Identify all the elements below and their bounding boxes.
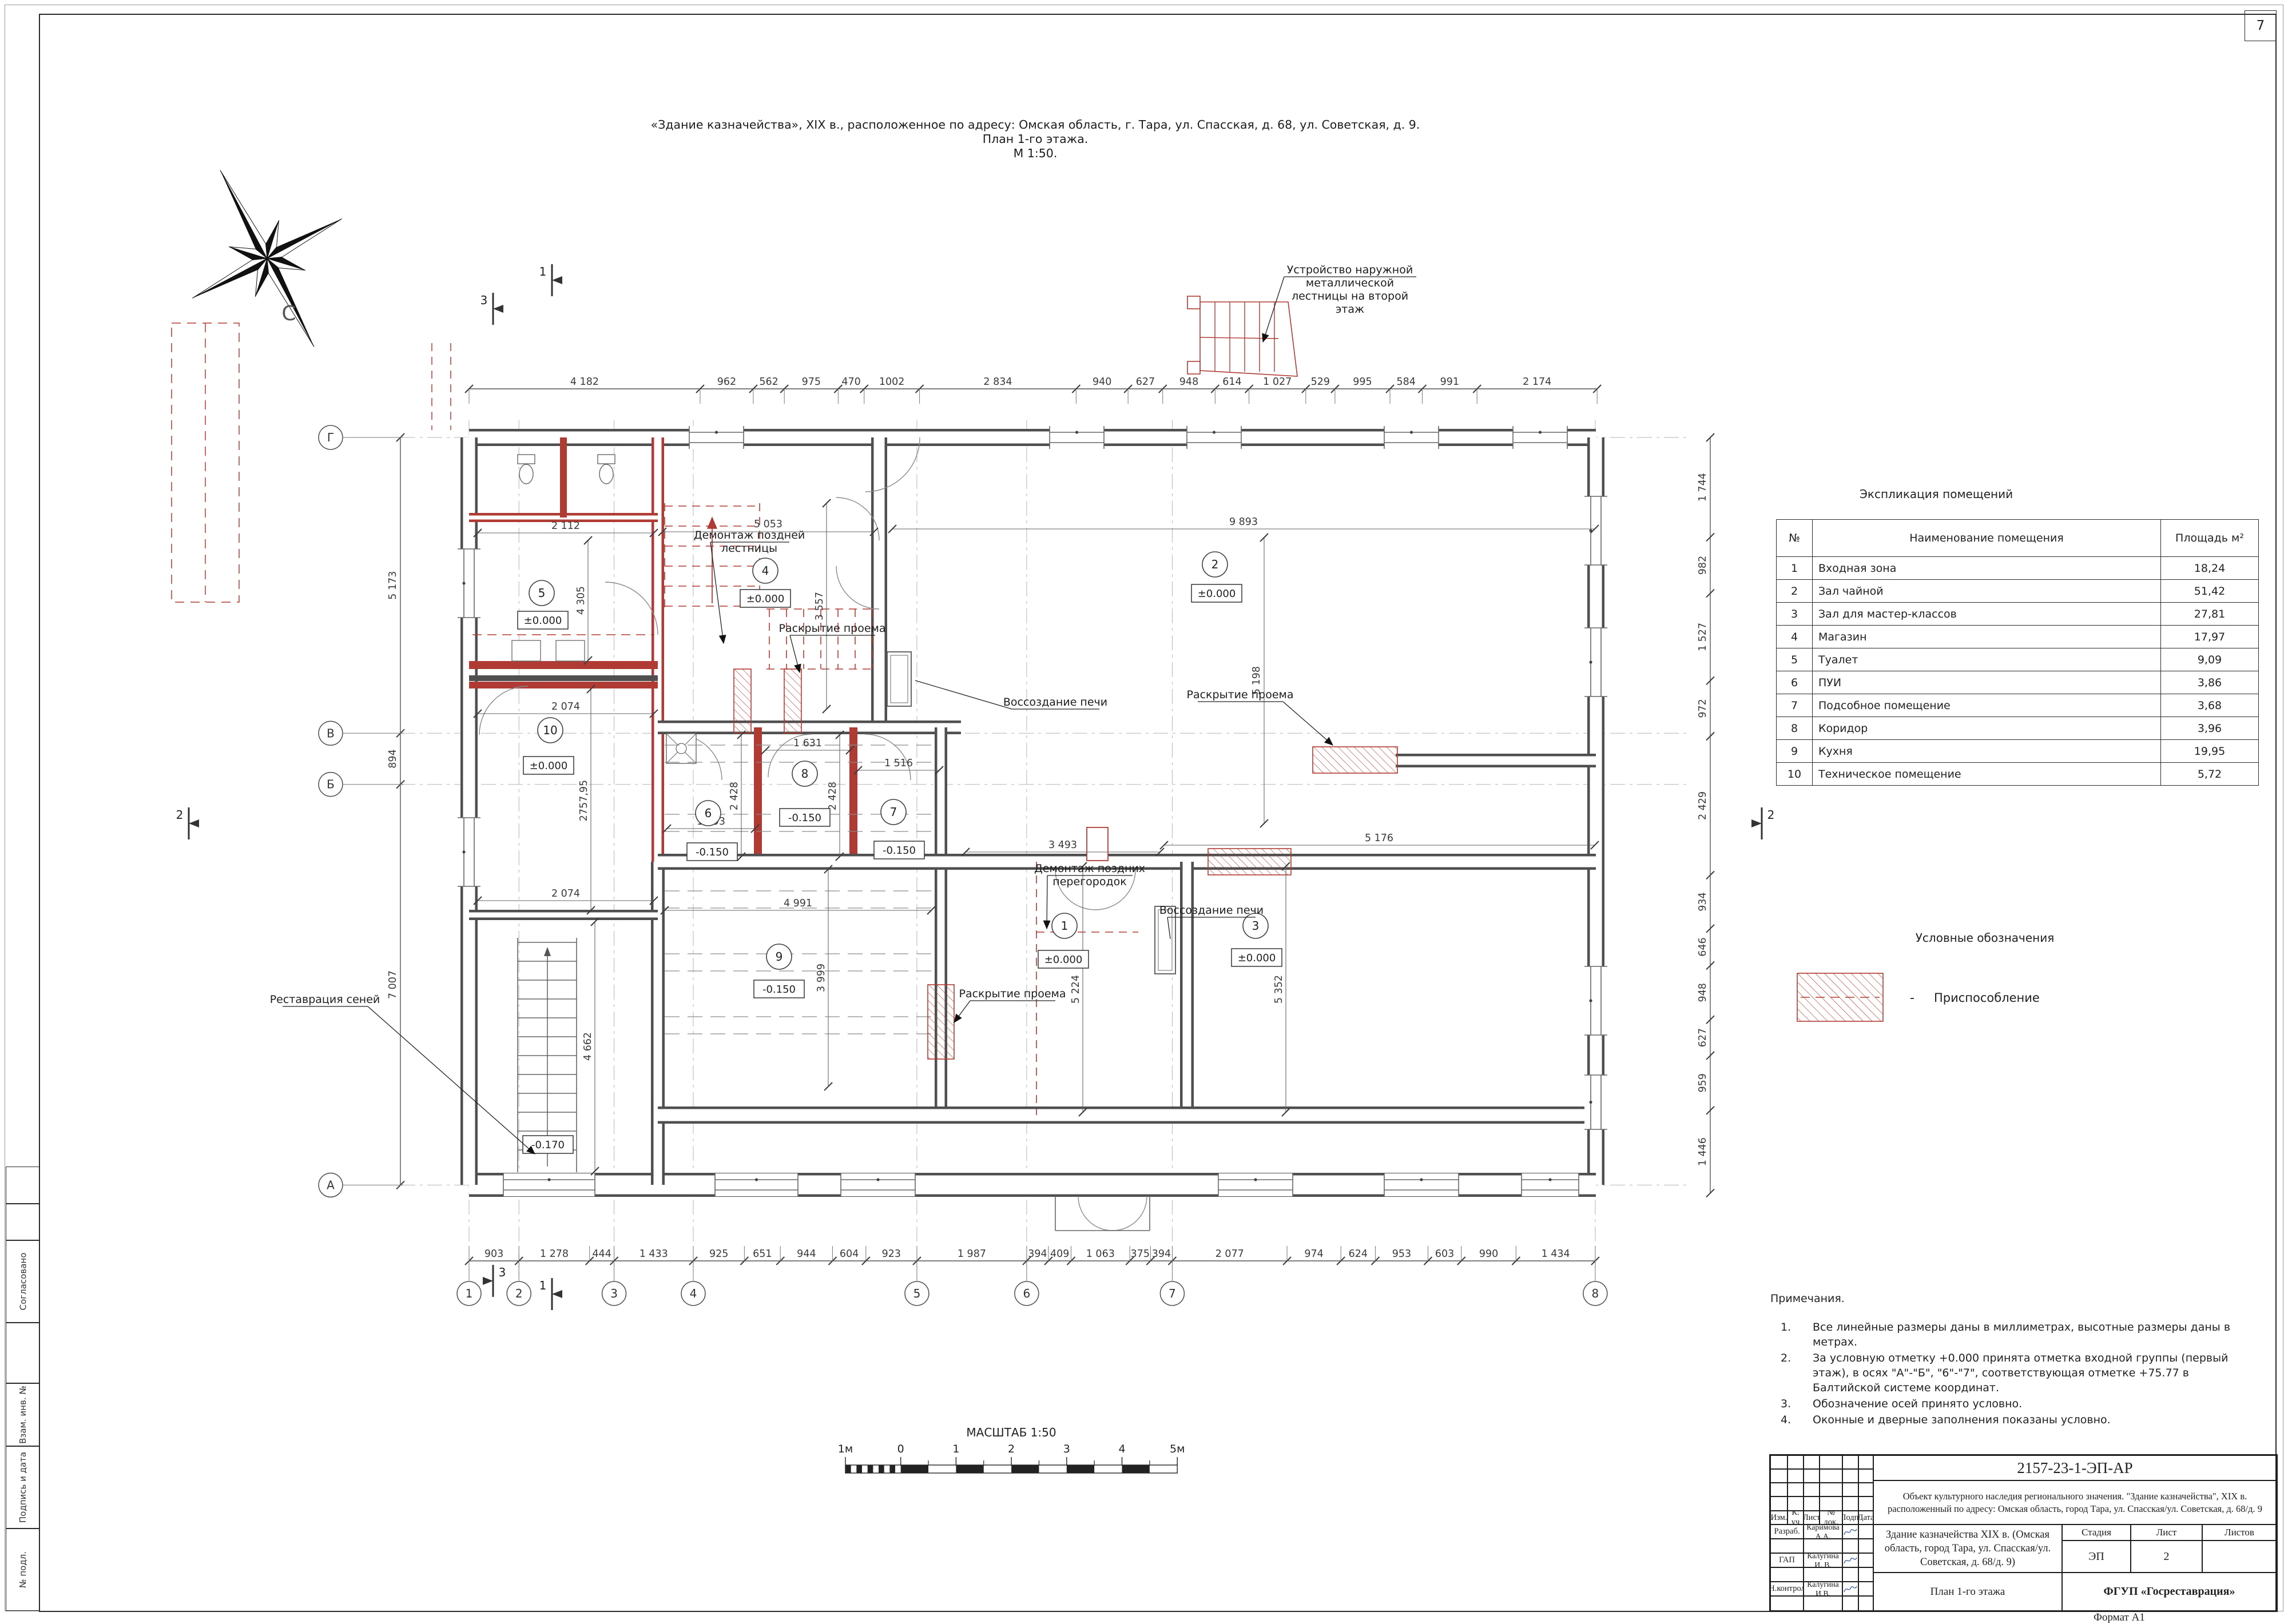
stamp-signature-cell [1842, 1596, 1858, 1611]
explication-row: 10Техническое помещение5,72 [1777, 763, 2259, 786]
door-arc [1113, 1196, 1147, 1231]
stamp-object-description: Объект культурного наследия региональног… [1882, 1490, 2268, 1515]
stamp-date-cell [1858, 1525, 1873, 1539]
compass-point [190, 253, 267, 298]
window-gap [841, 1173, 915, 1196]
room-explication: Экспликация помещений № Наименование пом… [1776, 487, 2228, 786]
dim-label: 2 174 [1523, 376, 1551, 388]
room-number-cell: 2 [1777, 580, 1813, 603]
dim-label: 948 [1697, 983, 1709, 1002]
window-dot [715, 431, 718, 433]
scale-bar-label: 4 [1118, 1443, 1125, 1455]
window-gap [1584, 628, 1607, 696]
dim-label: 2 077 [1215, 1248, 1244, 1260]
stamp-project-title: Здание казначейства XIX в. (Омская облас… [1873, 1525, 2062, 1573]
section-arrow [493, 305, 503, 313]
stamp-name: Калугина И. В. [1804, 1553, 1842, 1567]
stamp-name: Каримова А.А. [1804, 1525, 1842, 1539]
compass-point [267, 256, 319, 347]
room-number-cell: 5 [1777, 648, 1813, 671]
dim-label: 1 433 [639, 1248, 668, 1260]
dim-label: 627 [1697, 1028, 1709, 1047]
stamp-sheet-value: 2 [2131, 1541, 2202, 1573]
stamp-empty-cell [1787, 1469, 1804, 1483]
annotation-external-stair: этаж [1336, 303, 1364, 316]
stamp-empty-cell [1804, 1483, 1820, 1496]
dim-label: 624 [1349, 1248, 1368, 1260]
room-number: 7 [890, 805, 897, 819]
stamp-empty-cell [1770, 1455, 1787, 1469]
axis-bubble-label: 4 [690, 1287, 697, 1300]
window-dot [1420, 1178, 1423, 1181]
room-name-cell: ПУИ [1813, 671, 2161, 694]
stamp-empty-cell [1858, 1469, 1873, 1483]
section-label: 1 [539, 1279, 547, 1292]
scale-bar-block [889, 1465, 895, 1473]
stamp-header-5: Дата [1858, 1513, 1873, 1523]
room-name-cell: Магазин [1813, 626, 2161, 648]
stamp-date-cell [1858, 1596, 1873, 1611]
dim-label: 894 [387, 749, 399, 768]
stamp-empty-cell [1804, 1469, 1820, 1483]
window-dot [1254, 1178, 1257, 1181]
scale-bar-block [845, 1465, 851, 1473]
scale-bar-label: 2 [1008, 1443, 1015, 1455]
axis-bubble-label: Г [327, 431, 334, 444]
window-gap [458, 549, 480, 618]
room-number-cell: 7 [1777, 694, 1813, 717]
dim-label: 934 [1697, 892, 1709, 911]
axis-bubble-label: 6 [1023, 1287, 1031, 1300]
annotation-stove-2: Воссоздание печи [1159, 904, 1264, 917]
stamp-doc-number: 2157-23-1-ЭП-АР [2017, 1459, 2132, 1477]
room-name-cell: Кухня [1813, 740, 2161, 763]
window-dot [462, 582, 465, 584]
scale-bar-label: 3 [1063, 1443, 1070, 1455]
stamp-empty-cell [1842, 1496, 1858, 1511]
stamp-empty-cell [1820, 1496, 1842, 1511]
stamp-empty-cell [1820, 1455, 1842, 1469]
annotation-leader [1263, 277, 1284, 342]
dim-label: 1 063 [1086, 1248, 1115, 1260]
compass-north-label: С [281, 302, 296, 325]
explication-row: 2Зал чайной51,42 [1777, 580, 2259, 603]
dim-label: 975 [802, 376, 821, 388]
note-item: 1. Все линейные размеры даны в миллиметр… [1770, 1320, 2234, 1350]
stamp-date-cell [1858, 1567, 1873, 1582]
window-gap [1513, 426, 1567, 449]
stamp-organization: ФГУП «Госреставрация» [2104, 1585, 2235, 1598]
dim-label: 444 [592, 1248, 611, 1260]
annotation-external-stair: Устройство наружной [1287, 264, 1413, 276]
stamp-empty-cell [1842, 1469, 1858, 1483]
notes-title: Примечания. [1770, 1291, 2234, 1306]
window-gap [1187, 426, 1241, 449]
window-dot [1213, 431, 1215, 433]
axis-bubble-label: Б [327, 778, 335, 791]
adaptation-hatch [784, 669, 801, 733]
elevation-label: ±0.000 [746, 593, 785, 605]
title-block: Изм.К. учЛист№ док.Подп.ДатаРазраб.Карим… [1769, 1454, 2278, 1612]
dim-label: 2757,95 [578, 780, 590, 821]
annotation-leader [1283, 702, 1333, 745]
window-dot [1410, 431, 1413, 433]
axis-bubble-label: А [327, 1178, 335, 1192]
signature [1843, 1555, 1858, 1566]
dim-label: 614 [1222, 376, 1241, 388]
window-dot [876, 1178, 879, 1181]
room-name-cell: Зал для мастер-классов [1813, 603, 2161, 626]
room-area-cell: 17,97 [2161, 626, 2259, 648]
scale-bar-block [1011, 1465, 1039, 1473]
dim-label: 4 991 [784, 898, 812, 909]
stamp-role [1770, 1596, 1804, 1611]
explication-row: 6ПУИ3,86 [1777, 671, 2259, 694]
stamp-empty-cell [1787, 1496, 1804, 1511]
sidebar-cell-n-podl: № подл. [6, 1528, 40, 1611]
stamp-role: ГАП [1770, 1553, 1804, 1567]
axis-bubble-label: 3 [610, 1287, 618, 1300]
stamp-sheet-title: План 1-го этажа [1873, 1573, 2062, 1611]
room-area-cell: 51,42 [2161, 580, 2259, 603]
elevation-label: ±0.000 [530, 760, 568, 772]
axis-bubble-label: 7 [1169, 1287, 1176, 1300]
window-gap [1584, 496, 1607, 565]
stamp-empty-cell [1770, 1496, 1787, 1511]
basin-icon [556, 640, 585, 661]
stamp-signature-cell [1842, 1582, 1858, 1596]
dim-label: 1002 [879, 376, 905, 388]
stamp-empty-cell [1858, 1455, 1873, 1469]
window-gap [1584, 1075, 1607, 1129]
adaptation-hatch [734, 669, 751, 733]
stamp-header-3: № док. [1820, 1511, 1842, 1525]
sidebar-cell-empty [6, 1322, 40, 1384]
explication-row: 4Магазин17,97 [1777, 626, 2259, 648]
stamp-date-cell [1858, 1582, 1873, 1596]
stamp-role: Разраб. [1770, 1525, 1804, 1539]
axis-bubble-label: В [327, 726, 335, 740]
stamp-name [1804, 1596, 1842, 1611]
section-label: 2 [176, 808, 184, 822]
toilet-icon [519, 464, 533, 484]
annotation-seni: Реставрация сеней [270, 993, 380, 1006]
dim-label: 604 [840, 1248, 859, 1260]
axis-bubble-label: 8 [1592, 1287, 1599, 1300]
dim-label: 1 744 [1697, 473, 1709, 501]
annotation-leader [790, 635, 800, 672]
annotation-leader [954, 1001, 970, 1022]
stamp-role [1770, 1539, 1804, 1553]
toilet-icon [518, 455, 535, 464]
stamp-header-1: К. уч [1787, 1511, 1804, 1525]
stamp-sheet-label: Лист [2156, 1527, 2177, 1538]
door-arc [479, 686, 528, 735]
window-gap [1584, 966, 1607, 1035]
stamp-empty-cell [1804, 1496, 1820, 1511]
dim-label: 529 [1311, 376, 1330, 388]
section-arrow [189, 819, 199, 827]
dim-label: 470 [841, 376, 860, 388]
note-number: 2. [1770, 1351, 1813, 1395]
adaptation-hatch [1313, 747, 1397, 773]
scale-bar-block [879, 1465, 884, 1473]
dim-label: 4 662 [582, 1032, 594, 1061]
stamp-name [1804, 1539, 1842, 1553]
stair-arrow [544, 947, 551, 956]
stamp-empty-cell [1858, 1483, 1873, 1496]
explication-col-area: Площадь м² [2161, 520, 2259, 557]
note-text: Все линейные размеры даны в миллиметрах,… [1813, 1320, 2234, 1350]
window-gap [1384, 426, 1439, 449]
room-area-cell: 3,86 [2161, 671, 2259, 694]
stamp-stage-value: ЭП [2088, 1550, 2104, 1563]
stamp-name: Калугина И. В. [1804, 1553, 1842, 1567]
elevation-label: -0.150 [762, 984, 796, 996]
dim-label: 990 [1479, 1248, 1498, 1260]
stamp-empty-cell [1787, 1483, 1804, 1496]
compass-point [220, 168, 272, 258]
dim-label: 584 [1397, 376, 1416, 388]
elevation-label: -0.150 [788, 812, 821, 824]
section-label: 3 [480, 293, 488, 307]
stamp-name: Калугина И.В. [1804, 1582, 1842, 1596]
annotation-leader [368, 1006, 535, 1154]
window-gap [1050, 426, 1104, 449]
room-name-cell: Коридор [1813, 717, 2161, 740]
scale-bar-label: 5м [1170, 1443, 1185, 1455]
scale-bar-block [856, 1465, 862, 1473]
dim-label: 1 446 [1697, 1137, 1709, 1166]
scale-bar-block [868, 1465, 873, 1473]
stamp-header-1: К. уч [1788, 1511, 1803, 1525]
legend-dash: - [1910, 991, 1914, 1005]
dim-label: 2 834 [983, 376, 1012, 388]
room-number: 6 [705, 806, 712, 820]
note-item: 3. Обозначение осей принято условно. [1770, 1396, 2234, 1411]
section-arrow [483, 1277, 493, 1285]
section-label: 1 [539, 265, 547, 278]
scale-bar-block [956, 1465, 983, 1473]
stamp-sheet-title: План 1-го этажа [1930, 1586, 2005, 1598]
explication-row: 5Туалет9,09 [1777, 648, 2259, 671]
explication-row: 1Входная зона18,24 [1777, 557, 2259, 580]
explication-col-num: № [1777, 520, 1813, 557]
dim-label: 4 305 [575, 586, 587, 615]
explication-row: 3Зал для мастер-классов27,81 [1777, 603, 2259, 626]
stamp-date-cell [1858, 1539, 1873, 1553]
red-pier [1087, 827, 1108, 861]
stamp-header-3: № док. [1820, 1511, 1842, 1525]
room-number-cell: 6 [1777, 671, 1813, 694]
room-number: 5 [538, 586, 546, 600]
room-name-cell: Техническое помещение [1813, 763, 2161, 786]
room-number-cell: 10 [1777, 763, 1813, 786]
stamp-sheet-label: Лист [2131, 1525, 2202, 1541]
room-number-cell: 3 [1777, 603, 1813, 626]
scale-bar-block [901, 1465, 928, 1473]
window-dot [462, 850, 465, 853]
window-gap [1218, 1173, 1293, 1196]
signature [1843, 1583, 1858, 1595]
dim-label: 959 [1697, 1073, 1709, 1092]
stamp-role: Н.контрол [1770, 1582, 1804, 1596]
sidebar-cell-empty [6, 1203, 40, 1241]
scale-bar-block [1122, 1465, 1150, 1473]
window-dot [1589, 660, 1592, 663]
dim-label: 394 [1028, 1248, 1047, 1260]
window-gap [458, 818, 480, 886]
section-arrow [552, 276, 562, 284]
stamp-sheets-label: Листов [2202, 1525, 2277, 1541]
stamp-empty-cell [1842, 1483, 1858, 1496]
stamp-role [1770, 1567, 1804, 1582]
stamp-signature-cell [1842, 1525, 1858, 1539]
annotation-external-stair: металлической [1306, 277, 1394, 289]
dim-label: 948 [1179, 376, 1198, 388]
explication-col-name: Наименование помещения [1813, 520, 2161, 557]
window-gap [689, 426, 744, 449]
room-name-cell: Подсобное помещение [1813, 694, 2161, 717]
axis-bubble-label: 1 [466, 1287, 473, 1300]
dim-label: 2 428 [729, 782, 740, 810]
stamp-empty-cell [1820, 1469, 1842, 1483]
dim-label: 923 [882, 1248, 901, 1260]
note-item: 2. За условную отметку +0.000 принята от… [1770, 1351, 2234, 1395]
explication-row: 9Кухня19,95 [1777, 740, 2259, 763]
toilet-icon [599, 464, 613, 484]
stamp-empty-cell [1770, 1469, 1787, 1483]
stamp-header-2: Лист [1804, 1511, 1820, 1525]
dim-label: 972 [1697, 699, 1709, 718]
annotation-leader [1047, 875, 1047, 929]
toilet-icon [598, 455, 615, 464]
room-number: 10 [543, 723, 557, 737]
dim-label: 1 434 [1542, 1248, 1570, 1260]
stamp-empty-cell [1842, 1455, 1858, 1469]
external-stair-line [1200, 337, 1278, 339]
compass-rose [145, 130, 389, 387]
explication-row: 8Коридор3,96 [1777, 717, 2259, 740]
room-area-cell: 3,68 [2161, 694, 2259, 717]
room-area-cell: 3,96 [2161, 717, 2259, 740]
dim-label: 7 007 [387, 970, 399, 999]
sidebar-label: Подпись и дата [18, 1452, 28, 1523]
sidebar-label: № подл. [18, 1551, 28, 1587]
dim-label: 2 074 [551, 888, 580, 899]
dim-label: 646 [1697, 937, 1709, 956]
room-number: 9 [776, 950, 783, 964]
dim-label: 5 053 [754, 519, 782, 530]
room-area-cell: 5,72 [2161, 763, 2259, 786]
annotation-open-3: Раскрытие проема [959, 988, 1066, 1000]
window-dot [1589, 1101, 1592, 1104]
stamp-header-2: Лист [1804, 1513, 1820, 1523]
stamp-organization: ФГУП «Госреставрация» [2062, 1573, 2277, 1611]
dim-label: 627 [1136, 376, 1155, 388]
scale-bar-label: 1 [952, 1443, 959, 1455]
adaptation-hatch [1208, 849, 1291, 875]
signature [1843, 1526, 1858, 1538]
room-number-cell: 8 [1777, 717, 1813, 740]
stamp-header-4: Подп. [1842, 1511, 1858, 1525]
window-dot [755, 1178, 758, 1181]
annotation-stove-1: Воссоздание печи [1003, 696, 1107, 708]
annotation-partitions: Демонтаж поздних [1034, 862, 1145, 875]
window-gap [1384, 1173, 1459, 1196]
section-label: 2 [1767, 808, 1775, 822]
dim-label: 940 [1093, 376, 1111, 388]
stamp-signature-cell [1842, 1539, 1858, 1553]
note-number: 4. [1770, 1412, 1813, 1427]
sidebar-cell-empty [6, 1167, 40, 1204]
section-arrow [1751, 819, 1762, 827]
window-dot [547, 1178, 550, 1181]
dim-label: 2 074 [551, 701, 580, 713]
format-label: Формат А1 [2094, 1611, 2145, 1624]
dim-label: 982 [1697, 556, 1709, 575]
stamp-role: Н.контрол [1770, 1584, 1804, 1594]
explication-table: № Наименование помещения Площадь м² 1Вхо… [1776, 519, 2259, 786]
room-number: 8 [801, 767, 809, 781]
dim-label: 375 [1131, 1248, 1150, 1260]
scale-bar-title: МАСШТАБ 1:50 [966, 1426, 1056, 1439]
room-area-cell: 9,09 [2161, 648, 2259, 671]
note-text: Обозначение осей принято условно. [1813, 1396, 2234, 1411]
window-gap [503, 1173, 595, 1196]
door-arc [605, 582, 658, 635]
stamp-stage-value: ЭП [2062, 1541, 2131, 1573]
dim-label: 1 027 [1263, 376, 1292, 388]
red-hatch-swatch-icon [1796, 972, 1885, 1024]
window-dot [1548, 1178, 1551, 1181]
room-number: 1 [1061, 919, 1068, 933]
sidebar-label: Согласовано [18, 1253, 28, 1311]
sidebar-cell-soglasovano: Согласовано [6, 1240, 40, 1323]
room-number-cell: 4 [1777, 626, 1813, 648]
dim-label: 1 631 [793, 738, 822, 749]
annotation-external-stair: лестницы на второй [1292, 290, 1408, 302]
dim-label: 1 987 [958, 1248, 986, 1260]
dim-label: 603 [1435, 1248, 1454, 1260]
annotation-leader [915, 680, 1012, 709]
dim-label: 2 428 [827, 782, 839, 810]
dim-label: 2 112 [551, 520, 580, 532]
dim-label: 394 [1152, 1248, 1171, 1260]
legend-item-label: Приспособление [1934, 991, 2040, 1005]
stamp-role: Разраб. [1774, 1527, 1800, 1537]
room-number: 3 [1252, 919, 1260, 933]
dim-label: 562 [759, 376, 778, 388]
annotation-open-1: Раскрытие проема [778, 622, 885, 635]
dim-label: 409 [1050, 1248, 1069, 1260]
note-number: 1. [1770, 1320, 1813, 1350]
legend-title: Условные обозначения [1848, 931, 2122, 945]
stamp-empty-cell [1820, 1483, 1842, 1496]
window-gap [1522, 1173, 1579, 1196]
stamp-empty-cell [1787, 1455, 1804, 1469]
stamp-signature-cell [1842, 1553, 1858, 1567]
stamp-empty-cell [1858, 1496, 1873, 1511]
dim-label: 5 176 [1365, 833, 1393, 844]
stamp-sheet-value: 2 [2164, 1550, 2170, 1563]
scale-bar-label: 0 [897, 1443, 904, 1455]
external-stair-post [1187, 296, 1200, 309]
dim-label: 5 224 [1070, 975, 1082, 1004]
dim-label: 2 429 [1697, 791, 1709, 820]
elevation-label: ±0.000 [1238, 952, 1276, 964]
legend-item: - Приспособление [1796, 972, 2196, 1024]
